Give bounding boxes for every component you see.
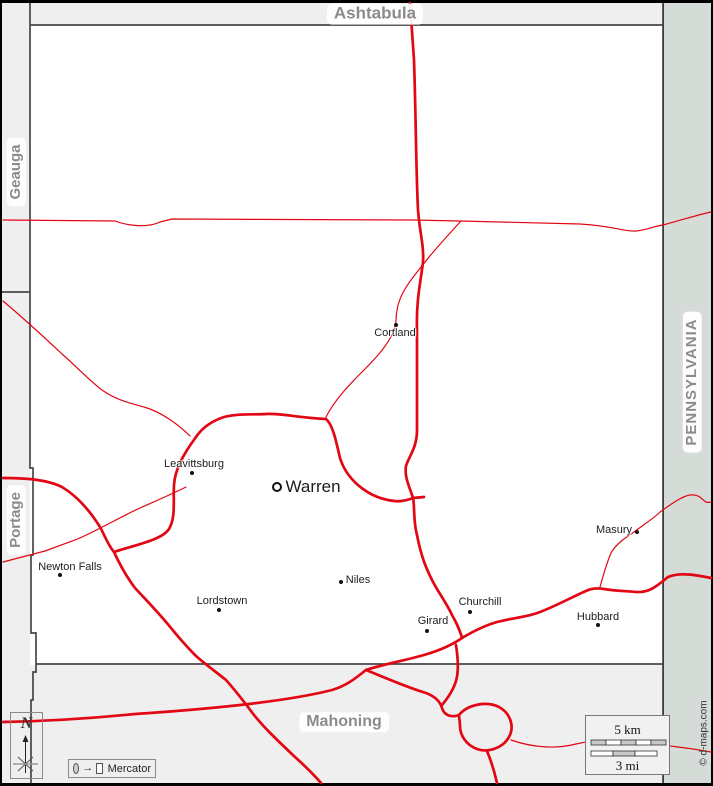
highway-north-south [406, 3, 462, 638]
globe-circle-icon [73, 763, 79, 774]
scale-mi-label: 3 mi [586, 758, 669, 774]
arrow-right-icon: → [82, 763, 93, 774]
city-dot-niles [339, 580, 343, 584]
highway-mahoning-center [366, 670, 459, 716]
road-masury [600, 495, 711, 587]
city-dot-churchill [468, 610, 472, 614]
neighbor-label-mahoning: Mahoning [299, 712, 389, 732]
major-roads [3, 3, 711, 783]
scale-bar-box: 5 km 3 mi [585, 715, 670, 775]
highway-girard-south [442, 645, 458, 705]
city-dot-lordstown [217, 608, 221, 612]
highway-loop [459, 704, 512, 750]
highway-girard-southwest [366, 638, 462, 670]
city-label-lordstown: Lordstown [197, 595, 248, 607]
minor-roads [3, 212, 711, 752]
map-linework [0, 0, 713, 786]
city-dot-hubbard [596, 623, 600, 627]
north-label: N [21, 715, 33, 733]
dmaps-credit: © d-maps.com [699, 700, 710, 765]
neighbor-label-ashtabula: Ashtabula [327, 4, 423, 25]
border-west [30, 3, 36, 664]
road-northwest-diagonal [3, 301, 190, 436]
highway-southwest [3, 478, 321, 783]
north-arrow-box: N [10, 712, 43, 779]
city-dot-girard [425, 629, 429, 633]
compass-needle-icon [11, 733, 40, 777]
city-label-niles: Niles [346, 574, 370, 586]
road-cortland [326, 221, 461, 417]
city-label-cortland: Cortland [374, 327, 416, 339]
neighbor-label-pennsylvania: PENNSYLVANIA [683, 311, 702, 452]
map-canvas: Cortland Leavittsburg Warren Newton Fall… [0, 0, 713, 786]
city-label-leavittsburg: Leavittsburg [164, 458, 224, 470]
city-label-girard: Girard [418, 615, 449, 627]
city-label-newton-falls: Newton Falls [38, 561, 102, 573]
city-label-masury: Masury [596, 524, 632, 536]
road-southwest-diagonal [3, 487, 186, 562]
city-label-churchill: Churchill [459, 596, 502, 608]
projected-square-icon [96, 763, 102, 774]
city-label-hubbard: Hubbard [577, 611, 619, 623]
highway-leavittsburg-south [114, 437, 196, 552]
city-dot-masury [635, 530, 639, 534]
road-east-west-north [3, 212, 711, 231]
city-ring-warren [272, 482, 282, 492]
projection-name: Mercator [108, 763, 151, 775]
neighbor-label-portage: Portage [7, 485, 26, 555]
neighbor-label-geauga: Geauga [7, 137, 26, 206]
city-label-warren: Warren [285, 477, 340, 497]
scale-km-label: 5 km [586, 722, 669, 738]
projection-legend: → Mercator [68, 759, 156, 778]
county-borders [2, 3, 663, 783]
city-dot-leavittsburg [190, 471, 194, 475]
highway-loop-tail [487, 751, 497, 783]
city-dot-newton-falls [58, 573, 62, 577]
